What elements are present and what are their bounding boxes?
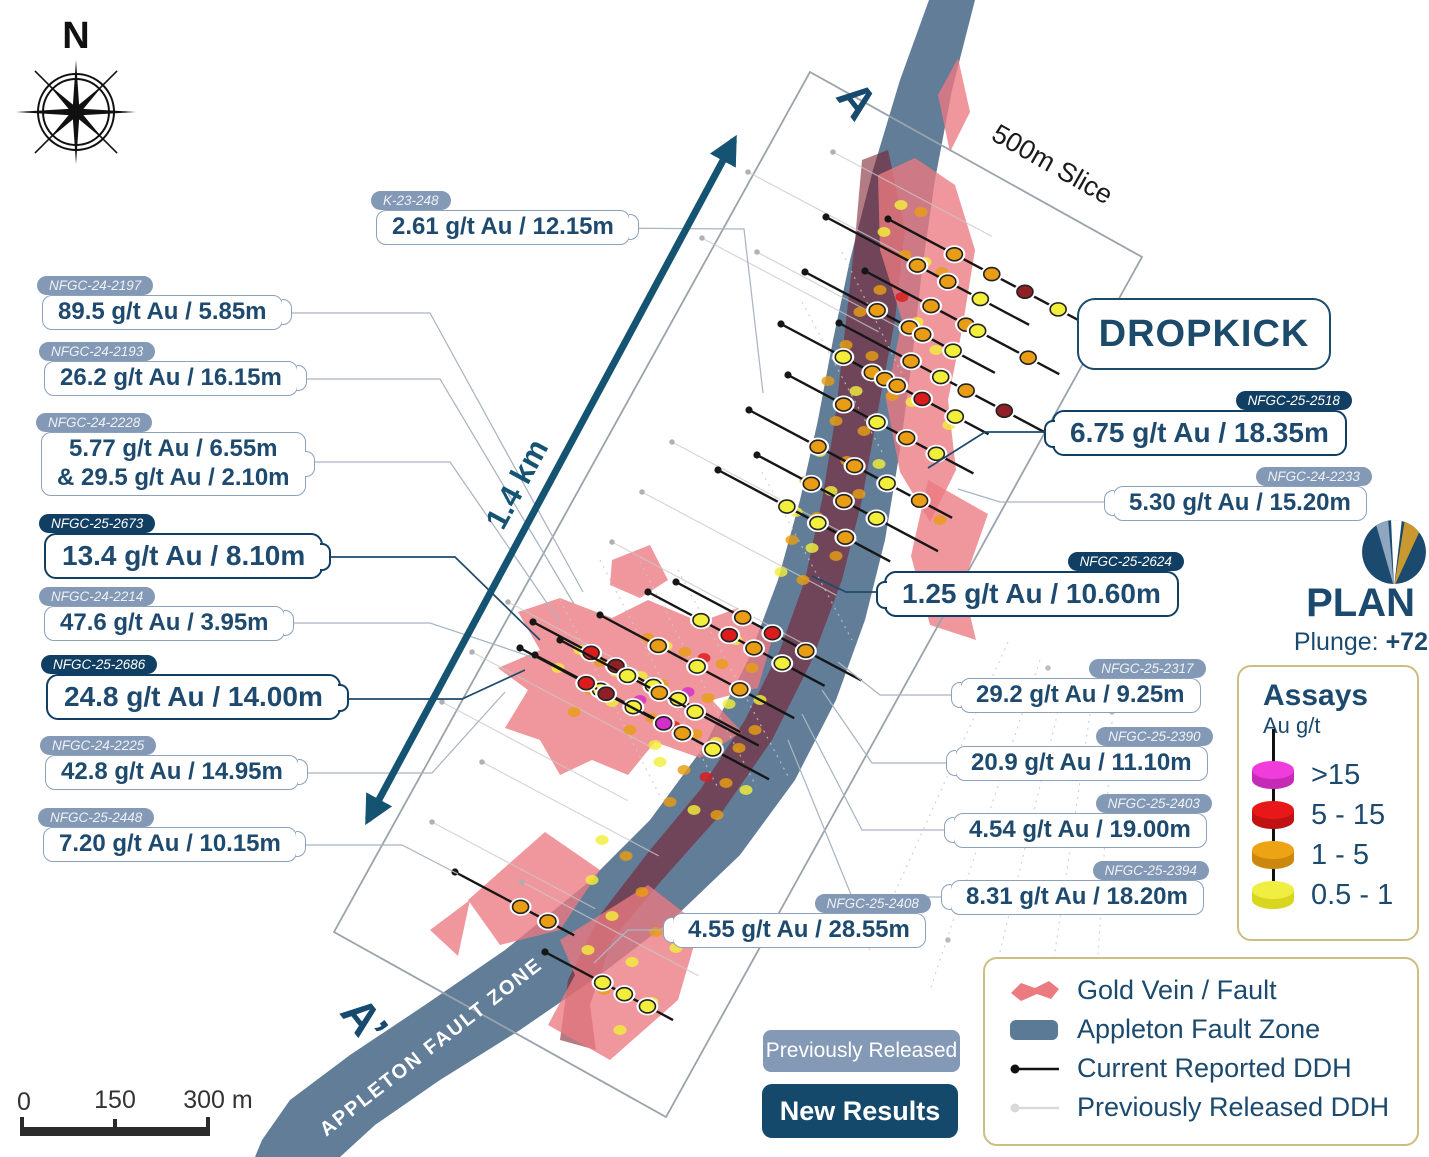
zone-swatch-icon (1007, 1016, 1059, 1044)
map-legend-row: Current Reported DDH (1007, 1049, 1417, 1088)
plunge-caption: Plunge: (1294, 628, 1379, 656)
assay-interval-value: 4.54 g/t Au / 19.00m (953, 813, 1207, 848)
map-legend: Gold Vein / FaultAppleton Fault ZoneCurr… (983, 957, 1419, 1146)
line-dark-swatch-icon (1007, 1055, 1059, 1083)
scale-tick-0: 0 (17, 1088, 31, 1116)
assay-callout: NFGC-24-221447.6 g/t Au / 3.95m (44, 606, 285, 641)
plunge-value: +72 (1386, 628, 1428, 656)
assay-interval-value: 89.5 g/t Au / 5.85m (42, 295, 283, 330)
hole-id-tag: NFGC-24-2214 (39, 587, 155, 606)
assay-callout: NFGC-25-268624.8 g/t Au / 14.00m (46, 674, 341, 720)
assay-interval-value: 8.31 g/t Au / 18.20m (950, 880, 1204, 915)
vein-swatch-icon (1007, 977, 1059, 1005)
assay-callout: NFGC-25-23948.31 g/t Au / 18.20m (950, 880, 1204, 915)
assays-legend-subtitle: Au g/t (1263, 713, 1417, 739)
assays-legend: Assays Au g/t >155 - 151 - 50.5 - 1 (1237, 665, 1419, 941)
hole-id-tag: NFGC-25-2624 (1068, 552, 1184, 571)
assay-interval-value: 24.8 g/t Au / 14.00m (46, 674, 341, 720)
assay-class-label: >15 (1311, 759, 1360, 792)
assay-callout: NFGC-25-267313.4 g/t Au / 8.10m (44, 533, 323, 579)
map-legend-label: Previously Released DDH (1077, 1092, 1389, 1123)
line-gray-swatch-icon (1007, 1094, 1059, 1122)
map-legend-label: Current Reported DDH (1077, 1053, 1352, 1084)
assay-class-label: 1 - 5 (1311, 839, 1369, 872)
assay-class-row: 1 - 5 (1239, 835, 1417, 875)
assay-interval-value: 4.55 g/t Au / 28.55m (672, 913, 926, 948)
assay-callout: NFGC-24-22335.30 g/t Au / 15.20m (1113, 486, 1367, 521)
assay-interval-value: 26.2 g/t Au / 16.15m (44, 361, 298, 396)
slice-label: 500m Slice (987, 118, 1118, 210)
assay-interval-value: 29.2 g/t Au / 9.25m (960, 678, 1201, 713)
assay-class-label: 0.5 - 1 (1311, 879, 1393, 912)
scale-bar: 0 150 300 m (17, 1086, 253, 1136)
assay-disc-icon (1249, 799, 1297, 831)
hole-id-tag: NFGC-24-2228 (36, 413, 152, 432)
assay-callout: NFGC-24-219789.5 g/t Au / 5.85m (42, 295, 283, 330)
assay-disc-icon (1249, 879, 1297, 911)
assay-interval-value: 20.9 g/t Au / 11.10m (955, 746, 1208, 781)
map-legend-row: Gold Vein / Fault (1007, 971, 1417, 1010)
assay-callout: NFGC-24-22285.77 g/t Au / 6.55m& 29.5 g/… (41, 432, 306, 496)
assay-callout: NFGC-24-222542.8 g/t Au / 14.95m (45, 755, 299, 790)
assay-class-row: 0.5 - 1 (1239, 875, 1417, 915)
view-mode-label: PLAN (1280, 581, 1415, 626)
assay-class-row: >15 (1239, 755, 1417, 795)
assay-interval-value: 7.20 g/t Au / 10.15m (43, 827, 297, 862)
assay-callout: NFGC-25-231729.2 g/t Au / 9.25m (960, 678, 1201, 713)
dropkick-plan-figure: 1.4 km A A’ 500m Slice APPLETON FAULT ZO… (0, 0, 1429, 1157)
map-legend-label: Gold Vein / Fault (1077, 975, 1277, 1006)
map-legend-row: Previously Released DDH (1007, 1088, 1417, 1127)
map-legend-label: Appleton Fault Zone (1077, 1014, 1320, 1045)
hole-id-tag: NFGC-25-2448 (38, 808, 154, 827)
scale-tick-300: 300 m (183, 1086, 252, 1114)
hole-id-tag: NFGC-25-2518 (1236, 391, 1352, 410)
assay-disc-icon (1249, 839, 1297, 871)
assay-interval-value: 6.75 g/t Au / 18.35m (1052, 410, 1347, 456)
assay-callout: NFGC-25-25186.75 g/t Au / 18.35m (1052, 410, 1347, 456)
assay-interval-value: 5.30 g/t Au / 15.20m (1113, 486, 1367, 521)
map-legend-row: Appleton Fault Zone (1007, 1010, 1417, 1049)
company-logo-icon (1361, 519, 1427, 585)
assay-callout: NFGC-25-26241.25 g/t Au / 10.60m (884, 571, 1179, 617)
assay-callout: NFGC-25-24084.55 g/t Au / 28.55m (672, 913, 926, 948)
project-title: DROPKICK (1077, 298, 1331, 370)
assay-callout: NFGC-25-239020.9 g/t Au / 11.10m (955, 746, 1208, 781)
previously-released-button[interactable]: Previously Released (763, 1030, 960, 1072)
assay-class-label: 5 - 15 (1311, 799, 1385, 832)
new-results-button[interactable]: New Results (762, 1084, 958, 1138)
hole-id-tag: NFGC-25-2317 (1089, 659, 1205, 678)
assay-disc-icon (1249, 759, 1297, 791)
hole-id-tag: NFGC-24-2193 (39, 342, 155, 361)
assay-interval-value: 5.77 g/t Au / 6.55m& 29.5 g/t Au / 2.10m (41, 432, 306, 496)
hole-id-tag: NFGC-25-2390 (1096, 727, 1212, 746)
hole-id-tag: NFGC-24-2197 (37, 276, 153, 295)
scale-tick-150: 150 (94, 1086, 136, 1114)
hole-id-tag: NFGC-25-2394 (1093, 861, 1209, 880)
north-label: N (62, 15, 89, 57)
hole-id-tag: NFGC-25-2686 (41, 655, 157, 674)
assay-interval-value: 1.25 g/t Au / 10.60m (884, 571, 1179, 617)
hole-id-tag: K-23-248 (371, 191, 451, 210)
assay-interval-value: 47.6 g/t Au / 3.95m (44, 606, 285, 641)
geology-layer (255, 0, 988, 1157)
assay-interval-value: 42.8 g/t Au / 14.95m (45, 755, 299, 790)
appleton-fault-zone-label: APPLETON FAULT ZONE (316, 954, 547, 1141)
plunge-label: Plunge: +72 (1245, 628, 1428, 657)
assay-interval-value: 2.61 g/t Au / 12.15m (376, 210, 630, 245)
hole-id-tag: NFGC-24-2233 (1256, 467, 1372, 486)
assay-interval-value: 13.4 g/t Au / 8.10m (44, 533, 323, 579)
assay-callout: NFGC-25-24034.54 g/t Au / 19.00m (953, 813, 1207, 848)
hole-id-tag: NFGC-25-2403 (1096, 794, 1212, 813)
compass-rose-icon (16, 60, 136, 164)
assay-callout: NFGC-24-219326.2 g/t Au / 16.15m (44, 361, 298, 396)
hole-id-tag: NFGC-25-2673 (39, 514, 155, 533)
assay-callout: NFGC-25-24487.20 g/t Au / 10.15m (43, 827, 297, 862)
section-a-label: A (827, 71, 888, 129)
hole-id-tag: NFGC-24-2225 (40, 736, 156, 755)
assays-legend-title: Assays (1263, 679, 1417, 713)
assay-callout: K-23-2482.61 g/t Au / 12.15m (376, 210, 630, 245)
hole-id-tag: NFGC-25-2408 (815, 894, 931, 913)
assay-class-row: 5 - 15 (1239, 795, 1417, 835)
